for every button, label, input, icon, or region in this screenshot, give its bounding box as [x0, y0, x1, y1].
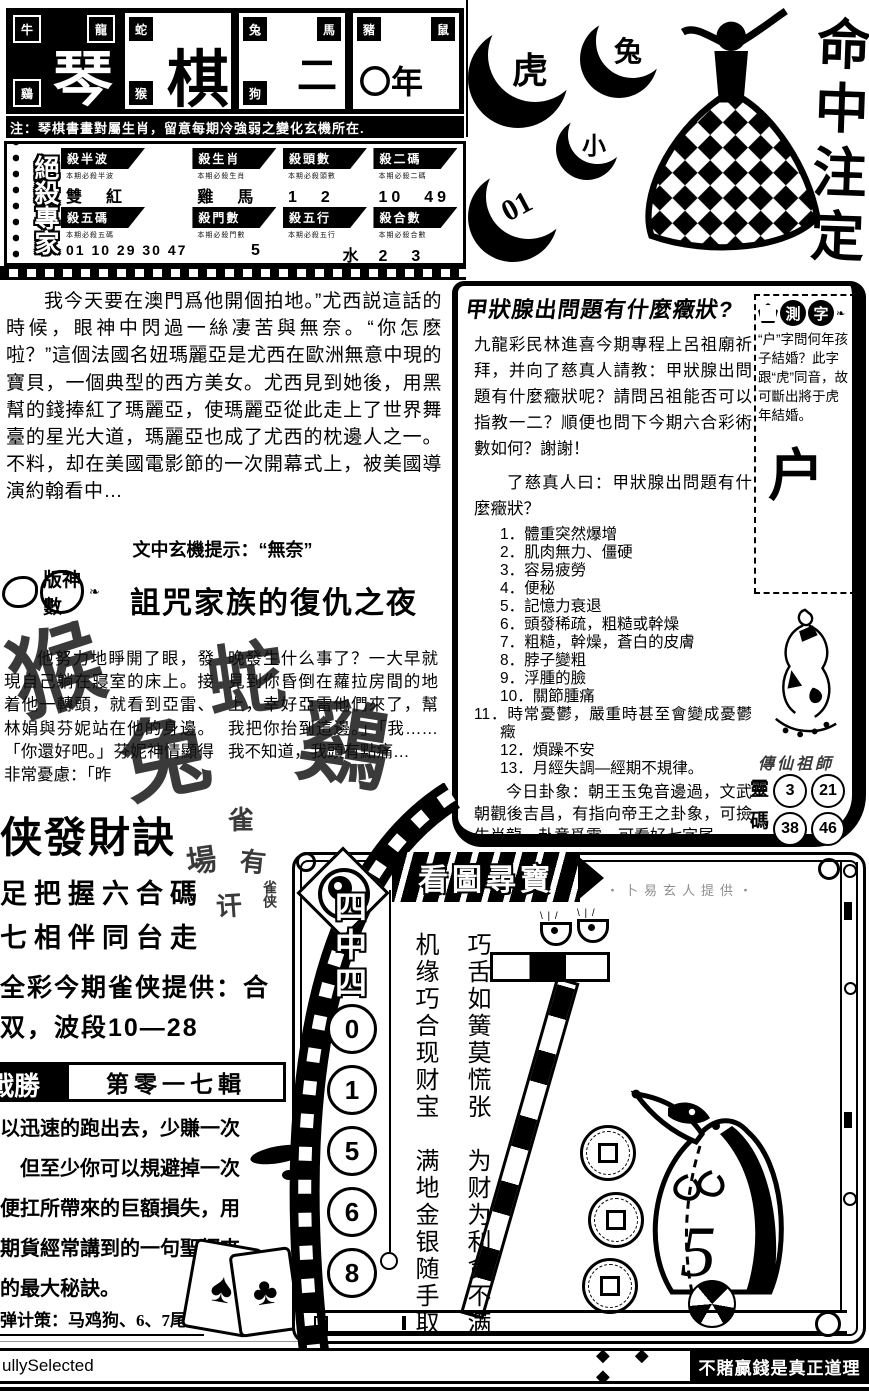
- kill-cell-sub: 本期必殺生肖: [197, 171, 278, 181]
- kill-cell: 殺門數本期必殺門數5: [192, 207, 278, 266]
- masthead-cell: 牛 龍 鷄 琴: [9, 11, 119, 111]
- kill-cell-sub: 本期必殺頭數: [288, 171, 369, 181]
- kill-cell: 殺生肖本期必殺生肖雞 馬: [192, 148, 278, 207]
- masthead-big-char: 〇年: [359, 57, 423, 103]
- handwriting-mark: 雀侠: [258, 880, 278, 908]
- story1-hint: 文中玄機提示：“無奈”: [0, 536, 445, 562]
- divider-line: [389, 890, 391, 1252]
- seven-top-bar: [490, 952, 610, 982]
- handwriting-mark: 雀: [228, 800, 254, 837]
- kill-cell-value: 1 2: [288, 183, 369, 207]
- kill-cell-header: 殺頭數: [283, 148, 367, 169]
- zodiac-tile-icon: 狗: [241, 79, 269, 107]
- quexia-line2: 七相伴同台走: [0, 916, 204, 955]
- symptom-item: 6．頭發稀疏，粗糙或幹燥: [474, 616, 752, 634]
- episode-strategy: 弹计策：马鸡狗、6、7尾。: [0, 1306, 204, 1336]
- handwriting-mark: 場: [183, 834, 219, 882]
- fourpick-numbers: 0 1 5 6 8: [327, 1004, 377, 1309]
- masthead-note: 注：琴棋書畫對屬生肖，留意每期冷強弱之變化玄機所在.: [6, 116, 464, 138]
- lingma-block: 靈 碼 3 21 38 46: [750, 774, 845, 846]
- episode-line: 以迅速的跑出去，少賺一次: [0, 1112, 284, 1152]
- symptom-item: 12．煩躁不安: [474, 742, 752, 760]
- kill-cell-sub: 本期必殺二碼: [378, 171, 459, 181]
- newspaper-page: 牛 龍 鷄 琴 蛇 猴 棋 兔 馬 狗 二 豬 鼠 〇年 注：琴棋書畫對屬生肖，…: [0, 0, 869, 1391]
- bottom-rail: [302, 1310, 847, 1334]
- kill-cell-header: 殺合數: [373, 207, 457, 228]
- riddle-big-char: 户: [768, 431, 852, 512]
- fourpick-label-text: 四中四: [326, 890, 372, 1004]
- symptom-item: 2．肌肉無力、僵硬: [474, 544, 752, 562]
- kill-cell-header: 殺生肖: [192, 148, 276, 169]
- symptom-item: 10．關節腫痛: [474, 688, 752, 706]
- crescent-char: 小: [582, 126, 606, 161]
- shield-ornament-icon: [758, 303, 778, 323]
- handwriting-mark: 讦: [215, 885, 244, 924]
- episode-logo-box: 戰勝: [0, 1062, 66, 1102]
- masthead-big-char: 棋: [167, 29, 229, 111]
- lingma-number: 21: [811, 774, 845, 808]
- treasure-poem: 巧舌如簧莫慌张 为财为利贪不满 机缘巧合现财宝 满地金银随手取: [398, 932, 502, 1344]
- symptom-item: 13．月經失調—經期不規律。: [474, 760, 752, 778]
- kill-cell-value: 10 49: [378, 183, 459, 207]
- quexia-line3: 全彩今期雀侠提供：合: [0, 968, 270, 1004]
- story1-paragraph: 我今天要在澳門爲他開個拍地。”尤西説這話的時候，眼神中閃過一絲凄苦與無奈。“你怎…: [6, 288, 442, 506]
- kill-cell-value: 水: [288, 242, 363, 266]
- number-circle: 8: [327, 1248, 377, 1298]
- masthead-big-char: 琴: [53, 31, 113, 111]
- lingma-label-bottom: 碼: [750, 806, 769, 838]
- quexia-line1: 足把握六合碼: [0, 872, 204, 911]
- thyroid-para3: 今日卦象：朝王玉兔音邊過，文武朝觀後吉昌，有指向帝王之卦象，可撿生肖龍。卦意爲震…: [474, 782, 752, 848]
- crescent-char: 兔: [614, 30, 642, 70]
- lingma-label-top: 靈: [750, 774, 769, 806]
- kill-cell-header: 殺門數: [192, 207, 276, 228]
- riddle-column: 測 字 ❧ “户”字問何年孩子結婚？此字跟“虎”同音，故可斷出將于虎年結婚。 户: [754, 294, 856, 594]
- masthead-cell: 蛇 猴 棋: [123, 11, 233, 111]
- riddle-logo: 測 字 ❧: [758, 300, 852, 326]
- calligraphy-destiny: 命中注定: [792, 15, 869, 274]
- number-circle: 1: [327, 1065, 377, 1115]
- kill-cell-header: 殺半波: [61, 148, 145, 169]
- lingma-number: 38: [773, 812, 807, 846]
- number-circle: 0: [327, 1004, 377, 1054]
- zodiac-tile-icon: 蛇: [127, 15, 155, 43]
- kill-cell-sub: 本期必殺五碼: [66, 230, 187, 240]
- kill-expert-table: 絕殺專家 殺半波本期必殺半波雙 紅 殺生肖本期必殺生肖雞 馬 殺頭數本期必殺頭數…: [4, 141, 466, 266]
- thyroid-article-box: 甲狀腺出問題有什麼癥狀? 九龍彩民林進喜今期專程上呂祖廟祈拜，并向了慈真人請教：…: [452, 281, 866, 847]
- symptom-item: 3．容易疲勞: [474, 562, 752, 580]
- banner-arrow-icon: [578, 856, 604, 900]
- episode-title: 第零一七輯: [66, 1062, 286, 1102]
- thyroid-para1: 九龍彩民林進喜今期專程上呂祖廟祈拜，并向了慈真人請教：甲狀腺出問題有什麼癥狀呢？…: [474, 332, 752, 462]
- symptom-item: 7．粗糙，幹燥，蒼白的皮膚: [474, 634, 752, 652]
- lingma-label: 靈 碼: [750, 774, 769, 846]
- kill-cell-sub: 本期必殺半波: [66, 171, 187, 181]
- poem-column-right: 巧舌如簧莫慌张 为财为利贪不满: [450, 932, 502, 1344]
- symptom-item: 4．便秘: [474, 580, 752, 598]
- zodiac-tile-icon: 馬: [315, 15, 343, 43]
- quexia-line4: 双，波段10—28: [0, 1008, 199, 1044]
- kill-table-logo: 絕殺專家: [19, 144, 59, 263]
- swirl-ornament-icon: ❧: [89, 584, 100, 600]
- riddle-text: “户”字問何年孩子結婚？此字跟“虎”同音，故可斷出將于虎年結婚。: [758, 330, 852, 425]
- thyroid-symptom-list: 1．體重突然爆增 2．肌肉無力、僵硬 3．容易疲勞 4．便秘 5．記憶力衰退 6…: [474, 526, 752, 778]
- badger-illustration: 5: [612, 1072, 802, 1302]
- number-circle: 5: [327, 1126, 377, 1176]
- poem-column-left: 机缘巧合现财宝 满地金银随手取: [398, 932, 450, 1344]
- qinqi-masthead: 牛 龍 鷄 琴 蛇 猴 棋 兔 馬 狗 二 豬 鼠 〇年: [6, 8, 464, 114]
- symptom-item: 8．脖子變粗: [474, 652, 752, 670]
- coin-icon: [580, 1125, 636, 1181]
- symptom-item: 5．記憶力衰退: [474, 598, 752, 616]
- footer-left-text: ullySelected: [2, 1356, 94, 1376]
- lingma-number: 3: [773, 774, 807, 808]
- thyroid-body: 九龍彩民林進喜今期專程上呂祖廟祈拜，并向了慈真人請教：甲狀腺出問題有什麼癥狀呢？…: [474, 332, 752, 848]
- corner-swirl-icon: [818, 858, 840, 880]
- fourpick-label: 四中四: [326, 890, 372, 1004]
- kill-cell: 殺合數本期必殺合數2 3: [373, 207, 459, 266]
- symptom-item: 11．時常憂鬱，嚴重時甚至會變成憂鬱癥: [474, 706, 752, 742]
- film-strip-divider: [0, 266, 466, 280]
- zodiac-tile-icon: 鼠: [429, 15, 457, 43]
- kill-cell-value: 雞 馬: [197, 183, 278, 207]
- handwriting-mark: 有: [238, 841, 268, 881]
- masthead-big-char: 二: [297, 43, 337, 101]
- kill-cell-value: 5: [197, 242, 264, 260]
- treasure-banner-text: 看圖尋寶: [418, 855, 554, 899]
- masthead-cell: 兔 馬 狗 二: [237, 11, 347, 111]
- handwriting-overlay: 蛇: [199, 613, 292, 735]
- zodiac-tile-icon: 牛: [13, 15, 41, 43]
- diamond-icons: ◆ ◆ ◆: [596, 1345, 690, 1387]
- swirl-ornament-icon: ❧: [836, 307, 845, 320]
- symptom-item: 1．體重突然爆增: [474, 526, 752, 544]
- kill-cell: 殺二碼本期必殺二碼10 49: [373, 148, 459, 207]
- zodiac-tile-icon: 兔: [241, 15, 269, 43]
- immortal-caption: 傳仙祖師: [758, 750, 834, 774]
- kill-cell-sub: 本期必殺合數: [378, 230, 459, 240]
- masthead-cell: 豬 鼠 〇年: [351, 11, 461, 111]
- kill-cell-value: 01 10 29 30 47: [66, 242, 187, 258]
- kill-cell: 殺頭數本期必殺頭數1 2: [283, 148, 369, 207]
- footer-slogan: 不賭贏錢是真正道理: [690, 1348, 869, 1384]
- thyroid-para2: 了慈真人曰：甲狀腺出問題有什麼癥狀？: [474, 470, 752, 522]
- crescent-char: 虎: [512, 42, 548, 94]
- kill-cell: 殺五碼本期必殺五碼01 10 29 30 47: [61, 207, 187, 266]
- footer-strip: ullySelected ◆ ◆ ◆: [0, 1348, 690, 1384]
- logo-medallion: 測: [780, 300, 806, 326]
- kill-cell-value: 2 3: [378, 242, 459, 266]
- zodiac-tile-icon: 猴: [127, 79, 155, 107]
- zodiac-tile-icon: 鷄: [13, 79, 41, 107]
- number-circle: 6: [327, 1187, 377, 1237]
- kill-cell: 殺半波本期必殺半波雙 紅: [61, 148, 187, 207]
- lingma-number: 46: [811, 812, 845, 846]
- symptom-item: 9．浮腫的臉: [474, 670, 752, 688]
- episode-line: 便扛所帶來的巨額損失，用: [0, 1192, 284, 1232]
- coin-icon: [588, 1192, 644, 1248]
- kill-cell-sub: 本期必殺門數: [197, 230, 278, 240]
- kill-cell-header: 殺五行: [283, 207, 367, 228]
- divider-line: [466, 0, 468, 137]
- logo-medallion: 字: [808, 300, 834, 326]
- treasure-banner: 看圖尋寶: [392, 852, 580, 902]
- kill-cell: 殺五行本期必殺五行水: [283, 207, 369, 266]
- coin-icon: [582, 1258, 638, 1314]
- zodiac-tile-icon: 豬: [355, 15, 383, 43]
- right-rail: [840, 862, 858, 1310]
- bottom-rule: [0, 1387, 869, 1391]
- kill-cell-header: 殺五碼: [61, 207, 145, 228]
- episode-logo: 戰勝: [0, 1066, 40, 1102]
- dots-ornament: [7, 144, 19, 263]
- provider-note: ・卜易玄人提供・: [606, 880, 758, 899]
- episode-line: 但至少你可以規避掉一次: [20, 1152, 284, 1192]
- curl-ornament-icon: [380, 1252, 398, 1270]
- kill-cell-value: 雙 紅: [66, 183, 187, 207]
- kill-cell-header: 殺二碼: [373, 148, 457, 169]
- kill-cell-sub: 本期必殺五行: [288, 230, 369, 240]
- immortal-figure-illustration: [756, 602, 854, 748]
